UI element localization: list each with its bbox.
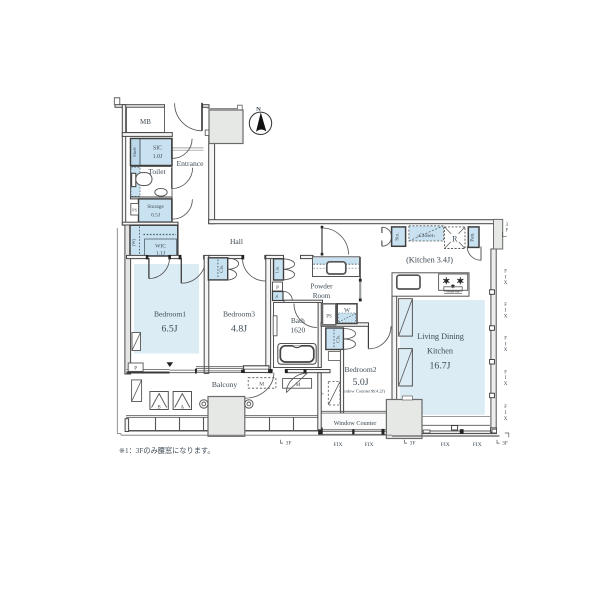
- svg-text:FIX: FIX: [473, 442, 482, 448]
- svg-text:F: F: [504, 370, 507, 375]
- svg-text:Toilet: Toilet: [148, 167, 166, 176]
- svg-text:F: F: [504, 270, 507, 275]
- svg-text:Storage: Storage: [147, 204, 164, 210]
- svg-text:‹Closet›: ‹Closet›: [417, 233, 435, 239]
- svg-text:R: R: [452, 235, 458, 244]
- svg-text:X: X: [504, 348, 508, 353]
- svg-text:Room: Room: [313, 292, 331, 300]
- svg-text:PS: PS: [326, 315, 332, 320]
- svg-text:Cls.: Cls.: [220, 265, 225, 273]
- svg-text:Bedroom1: Bedroom1: [154, 310, 186, 319]
- svg-text:WIC: WIC: [155, 244, 166, 250]
- svg-text:F: F: [505, 229, 508, 234]
- svg-text:X: X: [504, 281, 508, 286]
- svg-text:Sto.: Sto.: [395, 232, 401, 240]
- svg-text:Hall: Hall: [230, 237, 243, 246]
- svg-text:FIX: FIX: [441, 442, 450, 448]
- svg-text:0.5J: 0.5J: [151, 213, 160, 219]
- svg-text:5.0J: 5.0J: [352, 377, 368, 388]
- svg-text:FIX: FIX: [333, 442, 342, 448]
- svg-text:F: F: [504, 337, 507, 342]
- svg-text:(W): (W): [131, 238, 136, 246]
- svg-text:※1：3Fのみ腰窓になります。: ※1：3Fのみ腰窓になります。: [119, 446, 215, 455]
- svg-text:Lin.: Lin.: [275, 266, 280, 273]
- svg-text:Glass top: Glass top: [447, 290, 460, 294]
- svg-text:Pan.: Pan.: [470, 233, 476, 242]
- svg-text:P: P: [276, 286, 279, 291]
- svg-text:1.0J: 1.0J: [153, 154, 163, 160]
- svg-text:Shelf: Shelf: [132, 147, 137, 157]
- svg-text:A: A: [181, 405, 185, 410]
- svg-text:Bedroom3: Bedroom3: [223, 310, 255, 319]
- svg-text:X: X: [504, 315, 508, 320]
- svg-text:Window Counter※(4.2J): Window Counter※(4.2J): [339, 388, 385, 393]
- svg-text:16.7J: 16.7J: [430, 361, 451, 372]
- svg-text:Balcony: Balcony: [212, 380, 238, 389]
- svg-text:FIX: FIX: [364, 442, 373, 448]
- svg-text:N: N: [256, 106, 261, 113]
- svg-text:PS: PS: [132, 208, 137, 213]
- svg-text:P: P: [134, 367, 137, 372]
- svg-text:4.8J: 4.8J: [231, 323, 247, 334]
- svg-text:Kitchen: Kitchen: [427, 347, 453, 356]
- svg-text:Living Dining: Living Dining: [417, 332, 464, 341]
- svg-text:MB: MB: [140, 118, 151, 126]
- svg-text:Powder: Powder: [311, 283, 334, 291]
- svg-text:6.5J: 6.5J: [161, 323, 177, 334]
- svg-text:F: F: [504, 303, 507, 308]
- svg-text:(Kitchen 3.4J): (Kitchen 3.4J): [406, 256, 453, 265]
- svg-text:3F: 3F: [502, 441, 508, 447]
- svg-text:SIC: SIC: [153, 146, 162, 152]
- svg-text:1.1J: 1.1J: [156, 251, 166, 257]
- svg-text:M: M: [259, 381, 264, 387]
- svg-text:B: B: [157, 405, 160, 410]
- svg-text:F: F: [504, 405, 507, 410]
- svg-text:X: X: [504, 382, 508, 387]
- svg-text:X: X: [504, 417, 508, 422]
- svg-text:Entrance: Entrance: [177, 159, 205, 168]
- svg-text:1620: 1620: [290, 326, 305, 335]
- svg-text:3F: 3F: [410, 441, 416, 447]
- svg-text:Window Counter: Window Counter: [334, 420, 377, 427]
- svg-text:Cls.: Cls.: [336, 335, 341, 343]
- svg-text:In.: In.: [275, 294, 279, 298]
- svg-text:Bedroom2: Bedroom2: [344, 365, 376, 374]
- svg-text:3F: 3F: [286, 441, 292, 447]
